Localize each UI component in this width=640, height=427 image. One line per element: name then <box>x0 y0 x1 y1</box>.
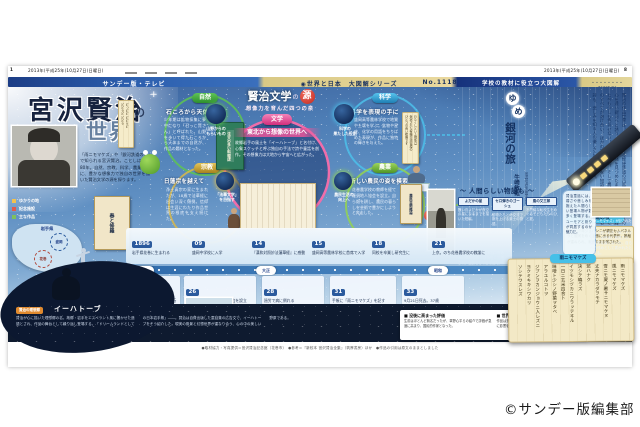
year-badge: 28 <box>264 289 277 296</box>
train-headlight <box>571 177 581 187</box>
stories-works: よだかの星 醜い鳥よだかが夜空の星になるまでを描いた短編。 セロ弾きのゴーシュ … <box>458 197 558 227</box>
scanned-newspaper-screenshot: 1 2013年(平成25年)10月27日(日曜日) 2013年(平成25年)10… <box>0 0 640 427</box>
diagram-title-accent: 源 <box>300 89 315 104</box>
frog-body <box>140 154 160 174</box>
religion-body: 浄土真宗の家に生まれたが、18歳で法華経に出会い深く傾倒。信仰は生涯にわたり作品… <box>166 187 208 227</box>
masthead-index-mark <box>145 72 157 74</box>
year-badge: 26 <box>186 289 199 296</box>
year-badge: 14 <box>252 241 265 248</box>
legend-item: ゆかりの地 <box>12 198 39 204</box>
legend-item: 記念施設 <box>12 206 39 212</box>
center-body: 故郷岩手の風土を「イーハトーブ」と名付け、心象スケッチと呼ぶ独自の手法で詩や童話… <box>235 140 319 180</box>
frog-eyes <box>143 150 148 155</box>
ihatov-body: 賢治が心に描いた理想郷の名。故郷・岩手をエスペラント風に響かせた造語とされ、作品… <box>16 316 388 340</box>
science-body: 盛岡高等農林学校で地質や土壌を学ぶ。鉱物や星座、化学の用語をちりばめた表現が、作… <box>354 117 398 163</box>
timeline-text: 盛岡中学校に入学 <box>192 250 246 255</box>
masthead-index-mark <box>185 72 197 74</box>
badge-science: 科学 <box>372 93 398 103</box>
work-item: セロ弾きのゴーシュ 動物たちとの交流で腕を上げる楽士の物語。 <box>492 197 523 227</box>
work-item: よだかの星 醜い鳥よだかが夜空の星になるまでを描いた短編。 <box>458 197 489 227</box>
diagram-title: 賢治文学 の 源 <box>226 88 336 104</box>
manuscript-image <box>240 183 316 229</box>
quote-text: わたくしといふ現象は 仮定された有機交流電燈の ひとつの青い照明です <box>403 113 419 163</box>
page-number-right: 8 <box>624 67 627 72</box>
timeline-text: 過労で病に倒れる <box>264 298 322 303</box>
poem-label: 雨ニモマケズ <box>550 254 596 263</box>
timeline-text: 岩手県花巻に生まれる <box>132 250 186 255</box>
ihatov-tag: 賢治の理想郷 <box>16 307 43 314</box>
masthead-index-mark <box>125 72 137 74</box>
essay-title-deco1: ゆ <box>506 92 519 105</box>
figure-head <box>413 166 420 173</box>
timeline-entry: 33 9月21日死去。37歳 <box>402 276 464 305</box>
wave-icon: 〜 <box>460 186 466 195</box>
nature-heading: 石ころから天体まで <box>166 107 244 116</box>
badge-literature: 文学 <box>262 114 292 125</box>
stories-right-paragraph: 手帳に記された「雨ニモマケズ」は死後に発見され、国民的な詩となった。自らへの戒め… <box>590 231 632 255</box>
legend-label: 主な作品 <box>19 214 35 220</box>
quote-text: どっどど どどうど どどうど どどう <box>119 101 130 147</box>
center-heading: 東北から想像の世界へ <box>233 128 321 137</box>
map-city-hanamaki: 花巻 <box>34 250 52 268</box>
era-label-taisho: 大正 <box>256 266 276 275</box>
arrow-dots <box>126 269 512 271</box>
node-caption: 農民生活の 向上へ <box>324 192 364 202</box>
map-label: 岩手県 <box>12 224 82 232</box>
masthead-index-mark <box>165 72 177 74</box>
nature-body: 少年期は鉱物採集に夢中になり「石っこ賢さん」と呼ばれた。山野を歩いて得た石ころか… <box>164 117 206 163</box>
train-window <box>600 154 608 162</box>
sitting-person-body <box>52 276 80 300</box>
portrait-body <box>18 160 70 186</box>
image-credit: ©サンデー版編集部 <box>504 398 635 418</box>
work-title: セロ弾きのゴーシュ <box>492 197 523 211</box>
timeline-arrow <box>126 266 512 274</box>
religion-heading: 日蓮宗を越えて <box>164 177 224 185</box>
page-number-left: 1 <box>10 67 13 72</box>
badge-farming: 農業 <box>372 163 398 173</box>
train-window <box>579 172 587 180</box>
poem-text: 雨ニモマケズ 風ニモマケズ 雪ニモ夏ノ暑サニモマケヌ 丈夫ナカラダヲモチ 慾ハナ… <box>509 258 633 339</box>
year-badge: 18 <box>372 241 385 248</box>
timeline-entry: 31 手帳に「雨ニモマケズ」を記す <box>330 276 396 305</box>
bar-right-label: 学校の教材に役立つ大図解 <box>462 79 580 87</box>
timeline-entry: 15 盛岡高等農林学校に首席で入学 <box>312 230 366 255</box>
work-item: 風の又三郎 不思議な転校生をめぐる子どもたちのひと夏。 <box>526 197 557 227</box>
train-window <box>593 160 601 168</box>
timeline-entry: 09 盛岡中学校に入学 <box>192 230 246 255</box>
timeline-text: 9月21日死去。37歳 <box>404 298 462 303</box>
legend: ゆかりの地 記念施設 主な作品 <box>12 198 39 220</box>
diagram-title-main: 賢治文学 <box>247 88 291 104</box>
legend-label: 記念施設 <box>19 206 35 212</box>
timeline-entry: 14 『漢和対照妙法蓮華経』に感動 <box>252 230 306 255</box>
book-cover-nomin-geijutsu: 農民芸術概論 <box>400 184 422 224</box>
timeline-text: 盛岡高等農林学校に首席で入学 <box>312 250 366 255</box>
sidebar-col: ■ 没後に高まった評価 生前はほとんど無名だったが、草野心平らの紹介で評価が急速… <box>404 313 492 337</box>
timeline-text: 『漢和対照妙法蓮華経』に感動 <box>252 250 306 255</box>
sidebar-body: 生前はほとんど無名だったが、草野心平らの紹介で評価が急速に高まり、国民的作家とな… <box>404 319 492 328</box>
stories-heading: 人間らしい物語も <box>469 185 525 195</box>
essay-title-deco2: め <box>512 105 525 118</box>
timeline-entry: 18 同校を卒業し研究生に <box>372 230 426 255</box>
portrait-hair <box>28 128 60 142</box>
timeline-text: 上京。のち花巻農学校の教諭に <box>432 250 486 255</box>
date-left: 2013年(平成25年)10月27日(日曜日) <box>28 68 103 74</box>
work-title: よだかの星 <box>458 197 489 206</box>
stories-heading-row: 〜 人間らしい物語も 〜 <box>460 185 534 195</box>
work-desc: 動物たちとの交流で腕を上げる楽士の物語。 <box>492 213 523 228</box>
work-desc: 不思議な転校生をめぐる子どもたちのひと夏。 <box>526 208 557 223</box>
node-nature-gift <box>206 104 226 124</box>
kenji-portrait-photo <box>12 126 76 186</box>
year-badge: 09 <box>192 241 205 248</box>
wave-icon: 〜 <box>528 186 534 195</box>
timeline-text: 手帳に「雨ニモマケズ」を記す <box>332 298 394 303</box>
quote-slip: どっどど どどうど どどうど どどう <box>118 100 134 148</box>
badge-nature: 自然 <box>192 93 218 103</box>
book-title: 春と修羅 <box>109 213 116 233</box>
legend-chip-icon <box>12 199 16 203</box>
year-badge: 1896 <box>132 241 152 248</box>
bar-series-number: No.1118 <box>420 79 460 86</box>
timeline-entry: 1896 岩手県花巻に生まれる <box>132 230 186 255</box>
work-title: 風の又三郎 <box>526 197 557 206</box>
work-desc: 醜い鳥よだかが夜空の星になるまでを描いた短編。 <box>458 208 489 223</box>
ihatov-title: イーハトーブ <box>54 304 102 314</box>
notebook-photo <box>592 188 630 216</box>
node-caption: 山野からの もらいもの <box>196 126 236 136</box>
timeline-text: 同校を卒業し研究生に <box>372 250 426 255</box>
timeline-entry: 21 上京。のち花巻農学校の教諭に <box>432 230 486 255</box>
node-caption: 「法華文学」 を目指す <box>208 192 246 202</box>
figure-body <box>228 214 240 229</box>
train-window <box>586 166 594 174</box>
book-title: 農民芸術概論 <box>409 194 414 214</box>
book-cover-haru-to-shura: 春と修羅 <box>94 196 130 250</box>
frog-illustration <box>138 148 162 176</box>
timeline-entry: 28 過労で病に倒れる <box>262 276 324 305</box>
era-label-showa: 昭和 <box>428 266 448 275</box>
legend-chip-icon <box>12 207 16 211</box>
notebook-caption: 「雨ニモマケズ」が記された手帳 <box>590 219 632 228</box>
node-farm-life <box>334 172 352 190</box>
node-science-role <box>334 104 354 124</box>
year-badge: 33 <box>404 289 417 296</box>
map-city-morioka: 盛岡 <box>50 233 68 251</box>
quote-slip: わたくしといふ現象は 仮定された有機交流電燈の ひとつの青い照明です <box>402 112 419 164</box>
date-right: 2013年(平成25年)10月27日(日曜日) <box>544 68 619 74</box>
legend-item: 主な作品 <box>12 214 39 220</box>
legend-label: ゆかりの地 <box>19 198 39 204</box>
year-badge: 21 <box>432 241 445 248</box>
node-hokke-literature <box>216 172 234 190</box>
poem-parchment: 雨ニモマケズ 風ニモマケズ 雪ニモ夏ノ暑サニモマケヌ 丈夫ナカラダヲモチ 慾ハナ… <box>508 257 635 342</box>
footer-credits: ●取材協力・写真提供＝宮沢賢治記念館（花巻市） ●参考＝『新校本 宮沢賢治全集』… <box>70 346 570 351</box>
year-badge: 15 <box>312 241 325 248</box>
diagram-title-no: の <box>292 92 298 101</box>
legend-chip-icon <box>12 215 16 219</box>
node-caption: 科学の 果たした役割 <box>324 126 366 136</box>
year-badge: 31 <box>332 289 345 296</box>
